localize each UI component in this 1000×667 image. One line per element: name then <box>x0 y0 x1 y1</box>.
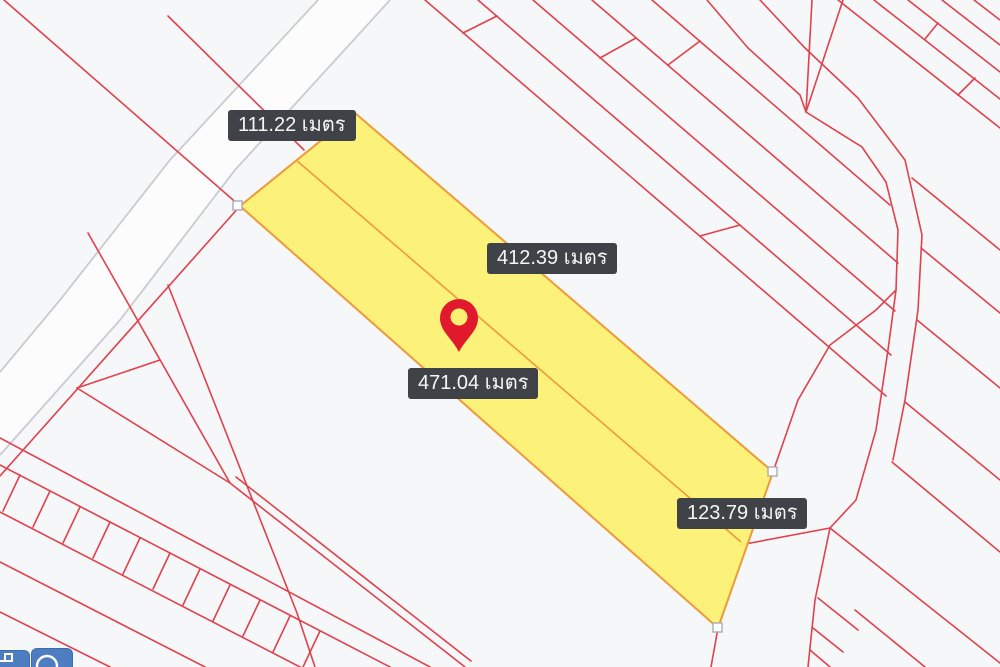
map-canvas[interactable]: 111.22 เมตร 412.39 เมตร 471.04 เมตร 123.… <box>0 0 1000 667</box>
measurement-label: 412.39 เมตร <box>487 243 617 274</box>
measure-line-icon <box>0 651 15 667</box>
measurement-label: 123.79 เมตร <box>677 498 807 529</box>
vertex-handle[interactable] <box>233 201 242 210</box>
measurement-label: 471.04 เมตร <box>408 368 538 399</box>
pin-hole <box>451 309 468 326</box>
vertex-handle[interactable] <box>713 623 722 632</box>
measure-circle-icon <box>32 649 62 667</box>
measure-circle-button[interactable] <box>31 648 73 667</box>
map-svg <box>0 0 1000 667</box>
measurement-label: 111.22 เมตร <box>228 110 356 141</box>
vertex-handle[interactable] <box>768 467 777 476</box>
measure-line-button[interactable] <box>0 650 30 667</box>
